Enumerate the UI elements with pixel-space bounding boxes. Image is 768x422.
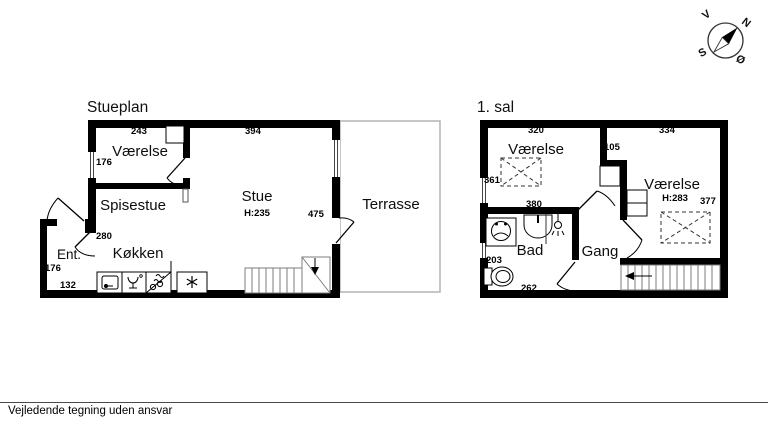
dim-bad-height: 203	[486, 255, 502, 266]
plan-title-1sal: 1. sal	[477, 99, 514, 117]
room-label-koekken: Køkken	[101, 245, 175, 262]
footer-disclaimer: Vejledende tegning uden ansvar	[8, 405, 172, 417]
stairs-ground-floor	[245, 257, 330, 293]
dim-ent-height: 176	[45, 263, 61, 274]
footer-divider	[0, 402, 768, 403]
dim-notch: 105	[604, 142, 620, 153]
room-label-ent: Ent.	[48, 247, 90, 262]
dim-mid-width: 380	[526, 199, 542, 210]
room-label-bad: Bad	[508, 242, 552, 259]
room-label-vaerelse-st: Værelse	[104, 143, 176, 160]
dim-left-width: 320	[528, 125, 544, 136]
dim-right-depth: 377	[700, 196, 716, 207]
ceiling-height-stue: H:235	[227, 208, 287, 219]
dim-left-depth: 361	[484, 175, 500, 186]
ceiling-height-vaerelse-right: H:283	[650, 193, 700, 204]
dim-koekken: 280	[96, 231, 112, 242]
shower-icon	[552, 214, 564, 236]
compass-rose-icon	[708, 23, 743, 58]
room-label-gang: Gang	[574, 243, 626, 260]
dim-ent-width: 132	[60, 280, 76, 291]
floorplan-sheet: Stueplan 243 394 176 Værelse Spisestue S…	[0, 0, 768, 422]
dim-stue-width: 394	[245, 126, 261, 137]
stairs-first-floor	[621, 265, 720, 290]
room-label-vaerelse-left: Værelse	[500, 141, 572, 158]
chimney	[166, 126, 184, 143]
dim-right-width: 334	[659, 125, 675, 136]
washbasin-icon	[524, 215, 552, 238]
toilet-icon	[484, 267, 513, 286]
dim-bad-width: 262	[521, 283, 537, 294]
room-label-spisestue: Spisestue	[93, 197, 173, 214]
room-label-vaerelse-right: Værelse	[636, 176, 708, 193]
plan-title-stueplan: Stueplan	[87, 99, 148, 117]
room-label-terrasse: Terrasse	[350, 196, 432, 213]
kitchen-counter	[97, 261, 207, 293]
room-label-stue: Stue	[227, 188, 287, 205]
dim-vaerelse-width: 243	[131, 126, 147, 137]
dim-stue-depth: 475	[308, 209, 324, 220]
half-wall-stub	[183, 189, 188, 202]
